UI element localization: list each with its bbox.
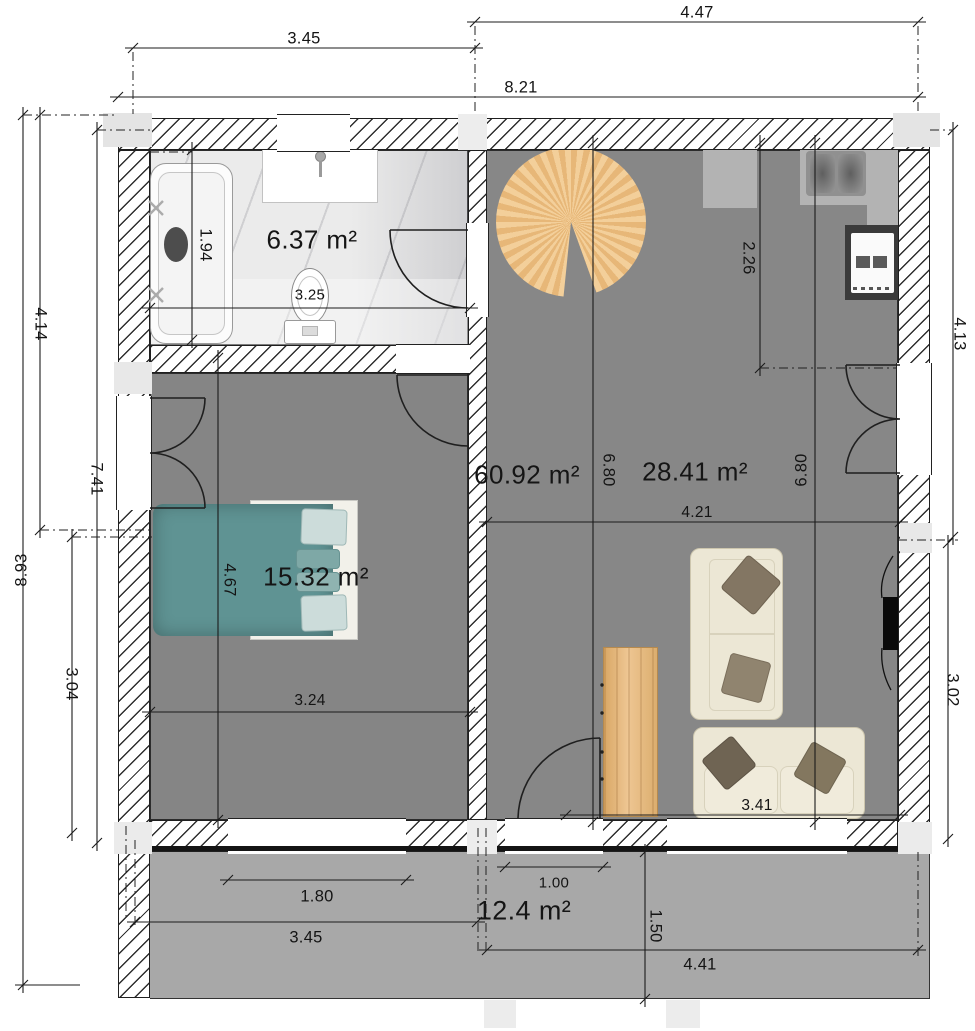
bedroom-door-opening — [396, 344, 470, 374]
dim-label-left-lower: 3.04 — [62, 667, 81, 700]
dim-label-top-bath: 3.45 — [287, 30, 320, 49]
dim-label-bedroom-width: 3.24 — [294, 692, 325, 710]
dim-label-bath-width: 3.25 — [295, 287, 325, 304]
column — [900, 523, 932, 553]
bed-pillow — [300, 508, 347, 546]
french-door-opening — [116, 396, 152, 510]
dim-label-bedroom-window: 1.80 — [300, 888, 333, 907]
dim-label-entrance-width: 1.00 — [539, 875, 569, 892]
bathroom-door-opening — [466, 223, 489, 317]
wall-top — [118, 118, 930, 150]
bed-pillow — [300, 594, 347, 632]
stove-griddle — [873, 256, 887, 268]
column — [114, 362, 152, 394]
column — [114, 822, 152, 854]
dim-label-left-inner: 7.41 — [87, 462, 106, 495]
dim-label-kitchen-depth: 2.26 — [739, 241, 758, 274]
terrace-step — [484, 1000, 516, 1028]
terrace-step — [666, 1000, 700, 1028]
toilet-button — [302, 326, 318, 336]
dim-label-living-width: 4.21 — [681, 504, 712, 522]
dim-label-right-upper: 4.13 — [950, 317, 969, 350]
sofa-vertical — [690, 548, 783, 720]
dim-label-top-total: 8.21 — [504, 79, 537, 98]
wall-right — [898, 150, 930, 852]
kitchen-counter — [867, 148, 898, 228]
wardrobe-wood — [603, 647, 658, 817]
dim-label-terrace-depth: 1.50 — [646, 909, 665, 942]
floor-plan: 4.47 3.45 8.21 8.93 4.14 7.41 3.04 1.94 … — [0, 0, 975, 1031]
kitchen-counter — [703, 148, 757, 208]
dim-label-terrace-right: 4.41 — [683, 956, 716, 975]
dim-label-left-upper: 4.14 — [31, 307, 50, 340]
room-area-label-living: 28.41 m² — [642, 457, 748, 488]
terrace-edge-line — [150, 846, 930, 851]
sofa-seat-divider — [709, 633, 775, 635]
column — [893, 113, 940, 147]
wall-left — [118, 150, 150, 998]
stove-griddle — [856, 256, 870, 268]
dim-label-living-height-right: 6.80 — [793, 453, 812, 486]
dim-label-terrace-left: 3.45 — [289, 929, 322, 948]
room-area-label-bedroom: 15.32 m² — [263, 562, 369, 593]
dim-label-bath-height: 1.94 — [196, 228, 215, 261]
bathtub-drain — [164, 227, 188, 262]
dim-label-right-lower: 3.02 — [943, 673, 962, 706]
room-area-label-terrace: 12.4 m² — [477, 896, 571, 927]
faucet-stem — [319, 161, 322, 177]
room-area-label-bathroom: 6.37 m² — [267, 225, 358, 256]
stove-controls — [853, 287, 892, 290]
column — [898, 822, 932, 854]
dim-label-sofa-span: 3.41 — [741, 797, 772, 815]
room-area-label-living-zone: 60.92 m² — [474, 460, 580, 491]
dim-label-left-total: 8.93 — [13, 553, 32, 586]
balcony-door-opening — [896, 363, 932, 475]
dim-line — [18, 107, 28, 993]
column — [103, 113, 152, 147]
column — [458, 114, 487, 150]
kitchen-sink-basin — [810, 154, 835, 193]
dim-label-top-partial: 4.47 — [680, 4, 713, 23]
dim-label-bedroom-height: 4.67 — [220, 563, 239, 596]
dim-label-living-height-left: 6.80 — [599, 453, 618, 486]
kitchen-sink-basin — [838, 154, 863, 193]
sofa-horizontal — [693, 727, 865, 819]
column — [467, 820, 497, 854]
bathroom-window — [277, 114, 350, 152]
